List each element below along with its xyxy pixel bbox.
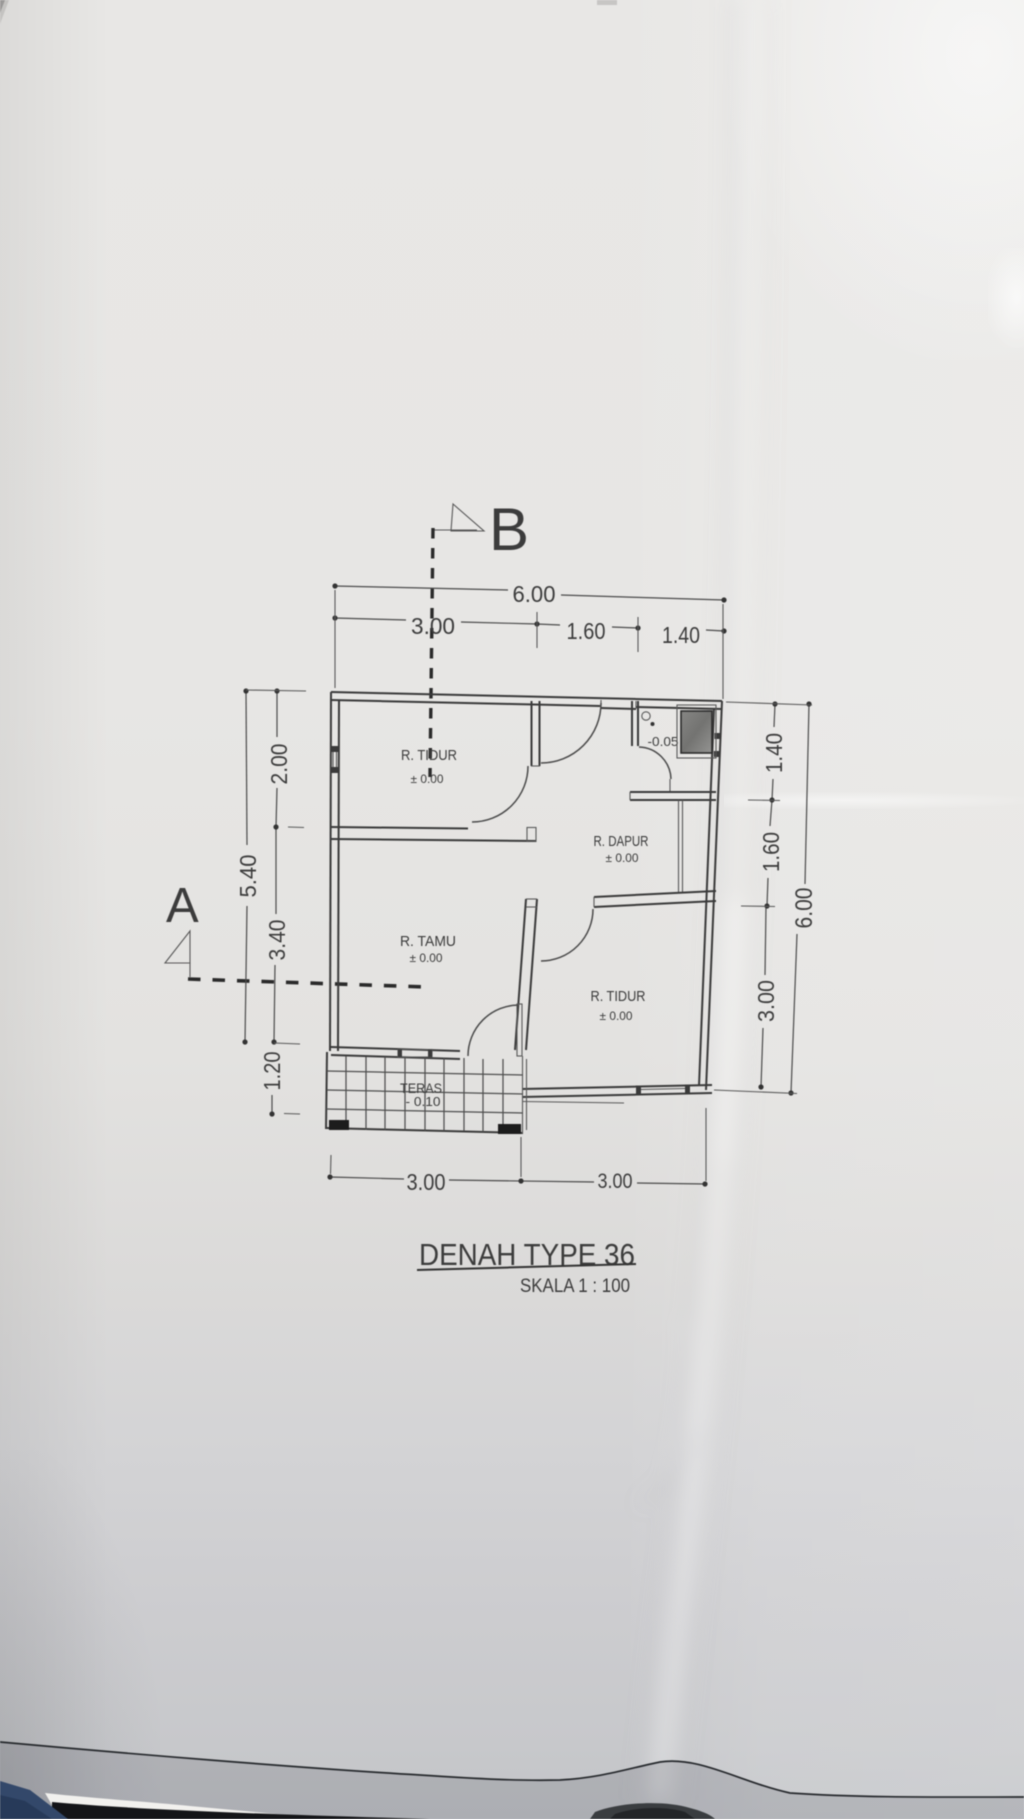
svg-text:3.00: 3.00 — [598, 1170, 633, 1193]
svg-text:1.40: 1.40 — [761, 733, 787, 773]
svg-text:R. TIDUR: R. TIDUR — [591, 989, 646, 1005]
svg-text:R. TAMU: R. TAMU — [400, 934, 456, 950]
svg-text:± 0.00: ± 0.00 — [410, 951, 443, 965]
svg-text:R. DAPUR: R. DAPUR — [594, 834, 649, 850]
svg-text:-0.05: -0.05 — [648, 734, 679, 749]
svg-text:A: A — [166, 879, 199, 933]
svg-text:1.20: 1.20 — [259, 1052, 285, 1091]
svg-text:1.40: 1.40 — [662, 622, 700, 648]
svg-text:± 0.00: ± 0.00 — [411, 772, 444, 786]
svg-text:5.40: 5.40 — [235, 855, 261, 898]
svg-text:1.60: 1.60 — [567, 618, 606, 644]
svg-text:1.60: 1.60 — [758, 832, 784, 872]
svg-text:6.00: 6.00 — [791, 888, 818, 929]
svg-text:6.00: 6.00 — [513, 581, 556, 607]
svg-text:3.00: 3.00 — [753, 980, 779, 1022]
svg-text:± 0.00: ± 0.00 — [606, 851, 639, 865]
svg-text:B: B — [489, 496, 529, 563]
svg-text:3.00: 3.00 — [411, 613, 455, 639]
svg-text:SKALA 1 : 100: SKALA 1 : 100 — [520, 1276, 630, 1297]
svg-text:3.40: 3.40 — [264, 920, 290, 961]
svg-text:- 0.10: - 0.10 — [406, 1095, 441, 1109]
svg-text:TERAS: TERAS — [400, 1080, 442, 1096]
svg-text:2.00: 2.00 — [266, 744, 292, 785]
svg-text:R. TIDUR: R. TIDUR — [401, 748, 457, 764]
svg-text:± 0.00: ± 0.00 — [600, 1009, 633, 1023]
svg-text:3.00: 3.00 — [407, 1169, 446, 1195]
